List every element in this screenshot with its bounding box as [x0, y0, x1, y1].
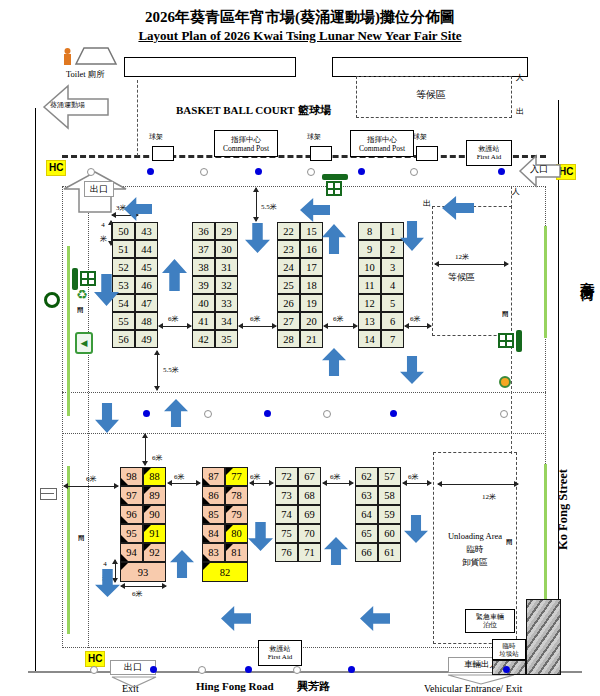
dim-6m-aboveE: 6米: [152, 453, 163, 463]
command-post-1-en: Command Post: [223, 144, 269, 153]
stall-82: 82: [202, 562, 248, 582]
stall-41: 41: [192, 312, 215, 330]
dim-6m-gh: 6米: [330, 472, 341, 482]
plant-icon: [499, 376, 511, 388]
refuse-label-2: 垃圾站: [499, 650, 519, 658]
marker-dot-filled: [143, 410, 150, 417]
dim-arrow-6m-leftE: [64, 486, 118, 487]
waiting-area-right-label: 等候區: [448, 273, 475, 282]
stall-3: 3: [381, 258, 404, 276]
stall-37: 37: [192, 240, 215, 258]
hc-badge-bottom: HC: [85, 651, 105, 667]
green-fence-right-upper: [544, 226, 547, 338]
exit-corridor-line: [88, 188, 89, 648]
command-post-2-en: Command Post: [359, 144, 405, 153]
command-post-2-zh: 指揮中心: [367, 135, 397, 144]
stall-21: 21: [300, 330, 323, 348]
stall-68: 68: [298, 486, 321, 505]
stall-87: 87: [202, 467, 225, 486]
stall-80: 80: [225, 524, 248, 543]
stall-16: 16: [300, 240, 323, 258]
marker-dot-filled: [348, 666, 355, 673]
stall-53: 53: [112, 276, 135, 294]
stall-79: 79: [225, 505, 248, 524]
unloading-label-zh1: 臨時: [467, 544, 484, 554]
court-divider-line: [137, 80, 138, 156]
stall-77: 77: [225, 467, 248, 486]
ko-fong-street-label-en: Ko Fong Street: [557, 415, 570, 550]
out-label-mid: 出: [423, 200, 431, 208]
dim-12m-waiting: 12米: [455, 252, 469, 262]
first-aid-station-bottom: 救護站 First Aid: [258, 640, 302, 666]
stall-27: 27: [277, 312, 300, 330]
person-label-mid: 人: [512, 188, 520, 196]
recycling-booth-icon-right: [496, 330, 522, 352]
stall-59: 59: [378, 505, 401, 524]
dim-6m-below93: 6米: [132, 589, 143, 599]
basketball-court-label-en: BASKET BALL COURT: [176, 105, 295, 117]
stall-83: 83: [202, 543, 225, 562]
dim-arrow-6m-ab: [159, 326, 191, 327]
dim-6m-ab: 6米: [168, 314, 179, 324]
notice-board-line: [41, 493, 54, 494]
dim-arrow-6m-bc: [239, 326, 276, 327]
stall-66: 66: [355, 543, 378, 562]
emergency-label-2: 泊位: [483, 621, 497, 629]
marker-dot-filled: [150, 666, 157, 673]
stall-19: 19: [300, 294, 323, 312]
stall-86: 86: [202, 486, 225, 505]
stall-1: 1: [381, 222, 404, 240]
dim-55m-belowA: 5.5米: [163, 365, 179, 375]
exit-bottom-box: 出口: [110, 660, 156, 675]
ball-rack-box-3: [416, 146, 438, 161]
stall-75: 75: [275, 524, 298, 543]
backboard-left: [124, 57, 296, 77]
hing-fong-road-label-zh: 興芳路: [297, 681, 330, 693]
hing-fong-road-label-en: Hing Fong Road: [196, 681, 274, 693]
page-title: 2026年葵青區年宵市場(葵涌運動場)攤位分佈圖: [0, 10, 600, 26]
stall-62: 62: [355, 467, 378, 486]
stall-34: 34: [215, 312, 238, 330]
first-aid-top-zh: 救護站: [479, 145, 500, 153]
dim-12m-unloading: 12米: [482, 492, 496, 502]
notice-board-icon: [40, 488, 57, 500]
marker-dot-open: [200, 168, 208, 176]
refuse-station-box: 臨時 垃圾站: [492, 639, 526, 660]
stall-96: 96: [120, 505, 143, 524]
unloading-label-zh2: 卸貨區: [462, 557, 488, 567]
first-aid-bottom-en: First Aid: [268, 653, 293, 661]
first-aid-top-en: First Aid: [477, 153, 502, 161]
stall-63: 63: [355, 486, 378, 505]
stall-40: 40: [192, 294, 215, 312]
stall-49: 49: [135, 330, 158, 348]
unloading-label-en: Unloading Area: [448, 531, 502, 541]
stall-33: 33: [215, 294, 238, 312]
layout-plan: 2026年葵青區年宵市場(葵涌運動場)攤位分佈圖 Layout Plan of …: [0, 0, 600, 696]
stall-25: 25: [277, 276, 300, 294]
stall-28: 28: [277, 330, 300, 348]
emergency-parking-box: 緊急車輛 泊位: [465, 609, 515, 633]
marker-dot-open: [90, 666, 98, 674]
stall-67: 67: [298, 467, 321, 486]
marker-dot-filled: [255, 168, 262, 175]
stall-47: 47: [135, 294, 158, 312]
stall-10: 10: [358, 258, 381, 276]
stall-39: 39: [192, 276, 215, 294]
marker-dot-open: [198, 666, 206, 674]
stall-50: 50: [112, 222, 135, 240]
circle-marker-icon: [44, 292, 60, 308]
stall-29: 29: [215, 222, 238, 240]
dim-6m-hu: 6米: [408, 472, 419, 482]
exit-top-box: 出口: [84, 181, 114, 197]
dim-arrow-6m-cd: [324, 326, 357, 327]
person-label-top: 人: [516, 74, 524, 82]
page-subtitle: Layout Plan of 2026 Kwai Tsing Lunar New…: [0, 29, 600, 43]
stall-13: 13: [358, 312, 381, 330]
entrance-label: 入口: [530, 165, 548, 174]
stall-78: 78: [225, 486, 248, 505]
marker-dot-open: [410, 168, 418, 176]
stall-22: 22: [277, 222, 300, 240]
stall-44: 44: [135, 240, 158, 258]
stall-60: 60: [378, 524, 401, 543]
dim-6m-leftE: 6米: [86, 474, 97, 484]
stall-65: 65: [355, 524, 378, 543]
stall-26: 26: [277, 294, 300, 312]
stall-64: 64: [355, 505, 378, 524]
dim-arrow-12m-unloading: [438, 484, 518, 485]
dim-arrow-6m-hu: [403, 483, 431, 484]
stall-15: 15: [300, 222, 323, 240]
ball-rack-box-2: [310, 146, 332, 161]
stall-69: 69: [298, 505, 321, 524]
toilet-label: Toilet 廁所: [66, 70, 105, 79]
stall-72: 72: [275, 467, 298, 486]
stall-85: 85: [202, 505, 225, 524]
stall-20: 20: [300, 312, 323, 330]
stall-12: 12: [358, 294, 381, 312]
green-arrow-sign-icon: ◀: [75, 332, 93, 354]
marker-dot-filled: [390, 410, 397, 417]
sports-ground-label: 葵涌運動場: [50, 102, 85, 109]
exit-bottom-label-en: Exit: [122, 684, 139, 695]
first-aid-bottom-zh: 救護站: [270, 645, 291, 653]
stall-8: 8: [358, 222, 381, 240]
recycle-symbol-icon: ♻: [76, 288, 88, 302]
dim-arrow-6m-ef: [168, 483, 200, 484]
vehicular-entrance-label-en: Vehicular Entrance/ Exit: [424, 684, 522, 695]
stall-61: 61: [378, 543, 401, 562]
stall-2: 2: [381, 240, 404, 258]
stall-42: 42: [192, 330, 215, 348]
command-post-2: 指揮中心 Command Post: [350, 130, 414, 157]
stall-35: 35: [215, 330, 238, 348]
stall-57: 57: [378, 467, 401, 486]
toilet-icon: [62, 44, 118, 68]
dim-3m: 3米: [116, 203, 127, 213]
dim-arrow-6m-below93: [121, 586, 166, 587]
dim-6m-ef: 6米: [174, 472, 185, 482]
dim-arrow-6m-fg: [250, 483, 273, 484]
marker-dot-open: [307, 168, 315, 176]
refuse-label-1: 臨時: [503, 642, 516, 650]
stall-17: 17: [300, 258, 323, 276]
dim-6m-bc: 6米: [250, 314, 261, 324]
marker-dot-filled: [358, 168, 365, 175]
waiting-area-top-label: 等候區: [416, 90, 446, 101]
basketball-court-label-zh: 籃球場: [298, 105, 331, 117]
marker-dot-filled: [498, 168, 505, 175]
stall-55: 55: [112, 312, 135, 330]
stall-84: 84: [202, 524, 225, 543]
stall-93: 93: [120, 562, 166, 582]
command-post-1: 指揮中心 Command Post: [214, 130, 278, 157]
mid-corridor-line-lower: [62, 433, 546, 434]
stall-73: 73: [275, 486, 298, 505]
stall-6: 6: [381, 312, 404, 330]
exit-bottom-label-zh: 出口: [124, 661, 142, 674]
stall-52: 52: [112, 258, 135, 276]
dim-arrow-55m-belowA: [157, 351, 158, 390]
dim-arrow-6m-dw: [405, 326, 431, 327]
stall-97: 97: [120, 486, 143, 505]
backboard-right: [332, 57, 528, 77]
emergency-label-1: 緊急車輛: [476, 613, 504, 621]
stall-74: 74: [275, 505, 298, 524]
stall-89: 89: [143, 486, 166, 505]
marker-dot-open: [500, 410, 508, 418]
stall-5: 5: [381, 294, 404, 312]
stall-32: 32: [215, 276, 238, 294]
ko-fong-street-label-zh: 高芳街: [579, 270, 594, 279]
stall-7: 7: [381, 330, 404, 348]
marker-dot-open: [87, 168, 95, 176]
stall-24: 24: [277, 258, 300, 276]
dim-4m-upper: 4米: [98, 221, 108, 229]
stall-90: 90: [143, 505, 166, 524]
first-aid-station-top: 救護站 First Aid: [466, 140, 512, 166]
dim-arrow-12m-waiting: [435, 264, 508, 265]
stall-94: 94: [120, 543, 143, 562]
stall-71: 71: [298, 543, 321, 562]
dim-arrow-6m-gh: [323, 483, 353, 484]
stall-48: 48: [135, 312, 158, 330]
stall-92: 92: [143, 543, 166, 562]
green-fence-left-lower: [67, 466, 70, 634]
exit-top-label: 出口: [90, 183, 108, 196]
stall-54: 54: [112, 294, 135, 312]
stall-23: 23: [277, 240, 300, 258]
marker-dot-filled: [245, 666, 252, 673]
stall-46: 46: [135, 276, 158, 294]
recycling-booth-icon-top: [322, 174, 348, 196]
stall-36: 36: [192, 222, 215, 240]
dim-arrow-6m-aboveE: [145, 434, 146, 465]
ball-rack-label-3: 球架: [413, 134, 427, 141]
ball-rack-label-2: 球架: [307, 134, 321, 141]
stall-88: 88: [143, 467, 166, 486]
stall-9: 9: [358, 240, 381, 258]
entry-path-mid: [511, 336, 512, 454]
hatched-structure-large: [526, 599, 561, 675]
mid-corridor-line-upper: [62, 392, 546, 393]
dim-4m-lower: 4米: [100, 560, 110, 568]
dim-arrow-55m-top: [256, 188, 257, 221]
stall-98: 98: [120, 467, 143, 486]
stall-31: 31: [215, 258, 238, 276]
stall-56: 56: [112, 330, 135, 348]
stall-81: 81: [225, 543, 248, 562]
stall-76: 76: [275, 543, 298, 562]
stall-91: 91: [143, 524, 166, 543]
ball-rack-box-1: [152, 146, 174, 161]
stall-95: 95: [120, 524, 143, 543]
dim-6m-dw: 6米: [410, 314, 421, 324]
stall-14: 14: [358, 330, 381, 348]
unloading-area-label: Unloading Area 臨時 卸貨區: [433, 530, 517, 568]
out-label-top: 出: [516, 108, 524, 116]
ball-rack-label-1: 球架: [149, 134, 163, 141]
marker-dot-filled: [503, 666, 510, 673]
dim-6m-cd: 6米: [333, 314, 344, 324]
marker-dot-open: [293, 666, 301, 674]
stall-18: 18: [300, 276, 323, 294]
stall-4: 4: [381, 276, 404, 294]
stall-43: 43: [135, 222, 158, 240]
marker-dot-open: [204, 410, 212, 418]
waiting-area-right: [432, 206, 512, 336]
stall-58: 58: [378, 486, 401, 505]
marker-dot-filled: [147, 168, 154, 175]
stall-70: 70: [298, 524, 321, 543]
stall-30: 30: [215, 240, 238, 258]
marker-dot-open: [323, 410, 331, 418]
dim-55m-top: 5.5米: [261, 202, 277, 212]
dim-arrow-4m-lower: [115, 560, 116, 582]
left-boundary-line: [35, 108, 36, 671]
stall-45: 45: [135, 258, 158, 276]
stall-51: 51: [112, 240, 135, 258]
stall-11: 11: [358, 276, 381, 294]
marker-dot-filled: [264, 410, 271, 417]
command-post-1-zh: 指揮中心: [231, 135, 261, 144]
stall-38: 38: [192, 258, 215, 276]
green-fence-left-upper: [67, 246, 70, 416]
